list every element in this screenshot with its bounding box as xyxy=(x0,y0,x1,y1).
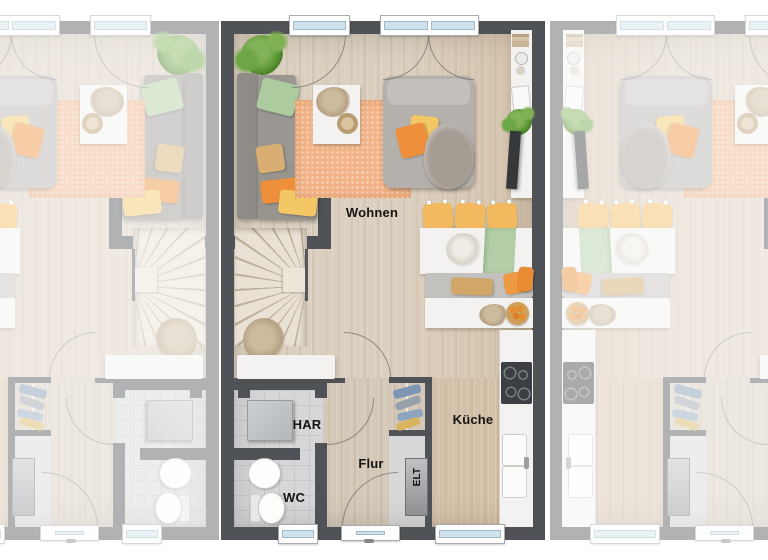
townhouse-unit: Wohnen Küche Flur HAR WC ELT xyxy=(550,21,768,540)
candle xyxy=(516,66,525,75)
neighbor-unit-right: Wohnen Küche Flur HAR WC ELT xyxy=(550,21,768,540)
living-window xyxy=(745,15,768,36)
entry-door-handle xyxy=(721,539,731,543)
hall-sideboard xyxy=(760,355,768,379)
pillow-tan xyxy=(154,143,184,173)
window-glass xyxy=(293,21,346,30)
toilet-bowl xyxy=(155,492,182,524)
mug xyxy=(567,52,580,65)
window-glass xyxy=(0,21,9,30)
flower-bouquet xyxy=(613,233,649,267)
faucet xyxy=(524,457,529,469)
books-stack xyxy=(566,34,583,47)
sink-basin-2 xyxy=(568,466,593,498)
wall-bottom xyxy=(0,527,219,540)
utility-pillar xyxy=(190,387,202,398)
window-glass xyxy=(439,530,501,538)
flower-bouquet xyxy=(446,233,482,267)
window-glass xyxy=(12,21,56,30)
coat-niche-right-wall xyxy=(663,377,670,436)
corner-plant xyxy=(157,35,199,75)
window-glass xyxy=(594,530,656,538)
neighbor-unit-left: Wohnen Küche Flur HAR WC ELT xyxy=(0,21,219,540)
wc-label: WC xyxy=(266,490,322,506)
dining-chair-1 xyxy=(422,202,454,231)
window-glass xyxy=(749,21,768,30)
faucet xyxy=(566,457,571,469)
patio-double-door xyxy=(380,15,479,36)
wc-window xyxy=(278,524,318,544)
wall-right xyxy=(532,21,545,540)
window-glass xyxy=(282,530,314,538)
cooktop xyxy=(501,362,532,404)
dining-chair-1 xyxy=(0,202,18,231)
kitchen-island xyxy=(0,298,15,328)
window-glass xyxy=(0,530,1,538)
fruit-bowl xyxy=(506,302,529,325)
coffee-table-tray xyxy=(82,113,103,134)
wc-washbasin xyxy=(159,458,192,489)
coat-niche-right-wall xyxy=(425,377,432,436)
coat-niche-right-wall xyxy=(8,377,15,436)
dining-chair-2 xyxy=(609,202,640,231)
stair-handrail xyxy=(305,249,308,301)
patio-double-door xyxy=(0,15,60,36)
wc-window xyxy=(122,524,162,544)
sofa-backrest xyxy=(181,73,203,219)
floorplan-canvas: Wohnen Küche Flur HAR WC ELT xyxy=(0,0,768,560)
books-stack xyxy=(512,34,529,47)
lounge-chair-cushion xyxy=(0,79,53,105)
entry-door-handle xyxy=(66,539,76,543)
door-glass xyxy=(710,531,739,535)
utility-pillar xyxy=(238,387,250,398)
door-glass xyxy=(55,531,84,535)
pillow-tan xyxy=(255,143,285,173)
hall-west-wall-upper xyxy=(315,383,327,398)
electrical-label: ELT xyxy=(412,462,424,492)
bench-pillow-orange-2 xyxy=(517,266,534,291)
window-glass xyxy=(384,21,428,30)
window-glass xyxy=(667,21,711,30)
entry-door-handle xyxy=(364,539,374,543)
wall-left xyxy=(221,21,234,540)
hall-west-wall-upper xyxy=(113,383,125,398)
main-unit: Wohnen Küche Flur HAR WC ELT xyxy=(221,21,545,540)
hall-sideboard xyxy=(105,355,203,379)
kitchen-floor xyxy=(0,378,8,527)
patio-double-door xyxy=(616,15,715,36)
dining-chair-2 xyxy=(454,202,485,231)
electrical-cabinet xyxy=(667,458,690,516)
stair-wall-horizontal xyxy=(764,236,768,249)
bench-pillow-tan xyxy=(451,277,494,295)
wall-left xyxy=(206,21,219,540)
table-runner xyxy=(483,228,516,274)
kitchen-window xyxy=(435,524,505,544)
kitchen-label: Küche xyxy=(441,412,505,428)
stair-landing xyxy=(283,268,307,292)
dining-chair-1 xyxy=(641,202,673,231)
kitchen-window xyxy=(0,524,5,544)
hall-west-wall-lower xyxy=(315,443,327,527)
fruit-bowl xyxy=(566,302,589,325)
table-runner xyxy=(579,228,612,274)
kitchen-window xyxy=(590,524,660,544)
window-glass xyxy=(620,21,664,30)
cooktop xyxy=(563,362,594,404)
sofa-backrest xyxy=(237,73,259,219)
dining-chair-3 xyxy=(577,202,608,231)
stair-landing xyxy=(133,268,157,292)
living-window xyxy=(289,15,350,36)
wc-washbasin xyxy=(248,458,281,489)
living-room-label: Wohnen xyxy=(339,205,405,221)
dining-table xyxy=(0,228,20,274)
electrical-cabinet xyxy=(12,458,35,516)
bench-pillow-orange-2 xyxy=(561,266,578,291)
coffee-table-tray xyxy=(337,113,358,134)
lounge-chair-cushion xyxy=(625,79,708,105)
window-glass xyxy=(126,530,158,538)
dining-bench xyxy=(0,273,15,298)
sink-basin-1 xyxy=(568,434,593,466)
candle xyxy=(570,66,579,75)
island-sprigs xyxy=(586,304,616,326)
washing-machine xyxy=(147,400,193,441)
hallway-label: Flur xyxy=(339,456,403,472)
townhouse-unit: Wohnen Küche Flur HAR WC ELT xyxy=(0,21,219,540)
door-glass xyxy=(356,531,385,535)
bench-pillow-tan xyxy=(602,277,645,295)
mug xyxy=(515,52,528,65)
townhouse-unit: Wohnen Küche Flur HAR WC ELT xyxy=(221,21,545,540)
dining-chair-3 xyxy=(486,202,517,231)
hall-west-wall-lower xyxy=(113,443,125,527)
hall-sideboard xyxy=(237,355,335,379)
living-window xyxy=(90,15,151,36)
stair-handrail xyxy=(132,249,135,301)
window-glass xyxy=(94,21,147,30)
coffee-table-tray xyxy=(737,113,758,134)
window-glass xyxy=(431,21,475,30)
lounge-chair-cushion xyxy=(387,79,470,105)
sink-basin-2 xyxy=(502,466,527,498)
corner-plant xyxy=(241,35,283,75)
island-sprigs xyxy=(479,304,509,326)
utility-room-label: HAR xyxy=(279,417,335,433)
